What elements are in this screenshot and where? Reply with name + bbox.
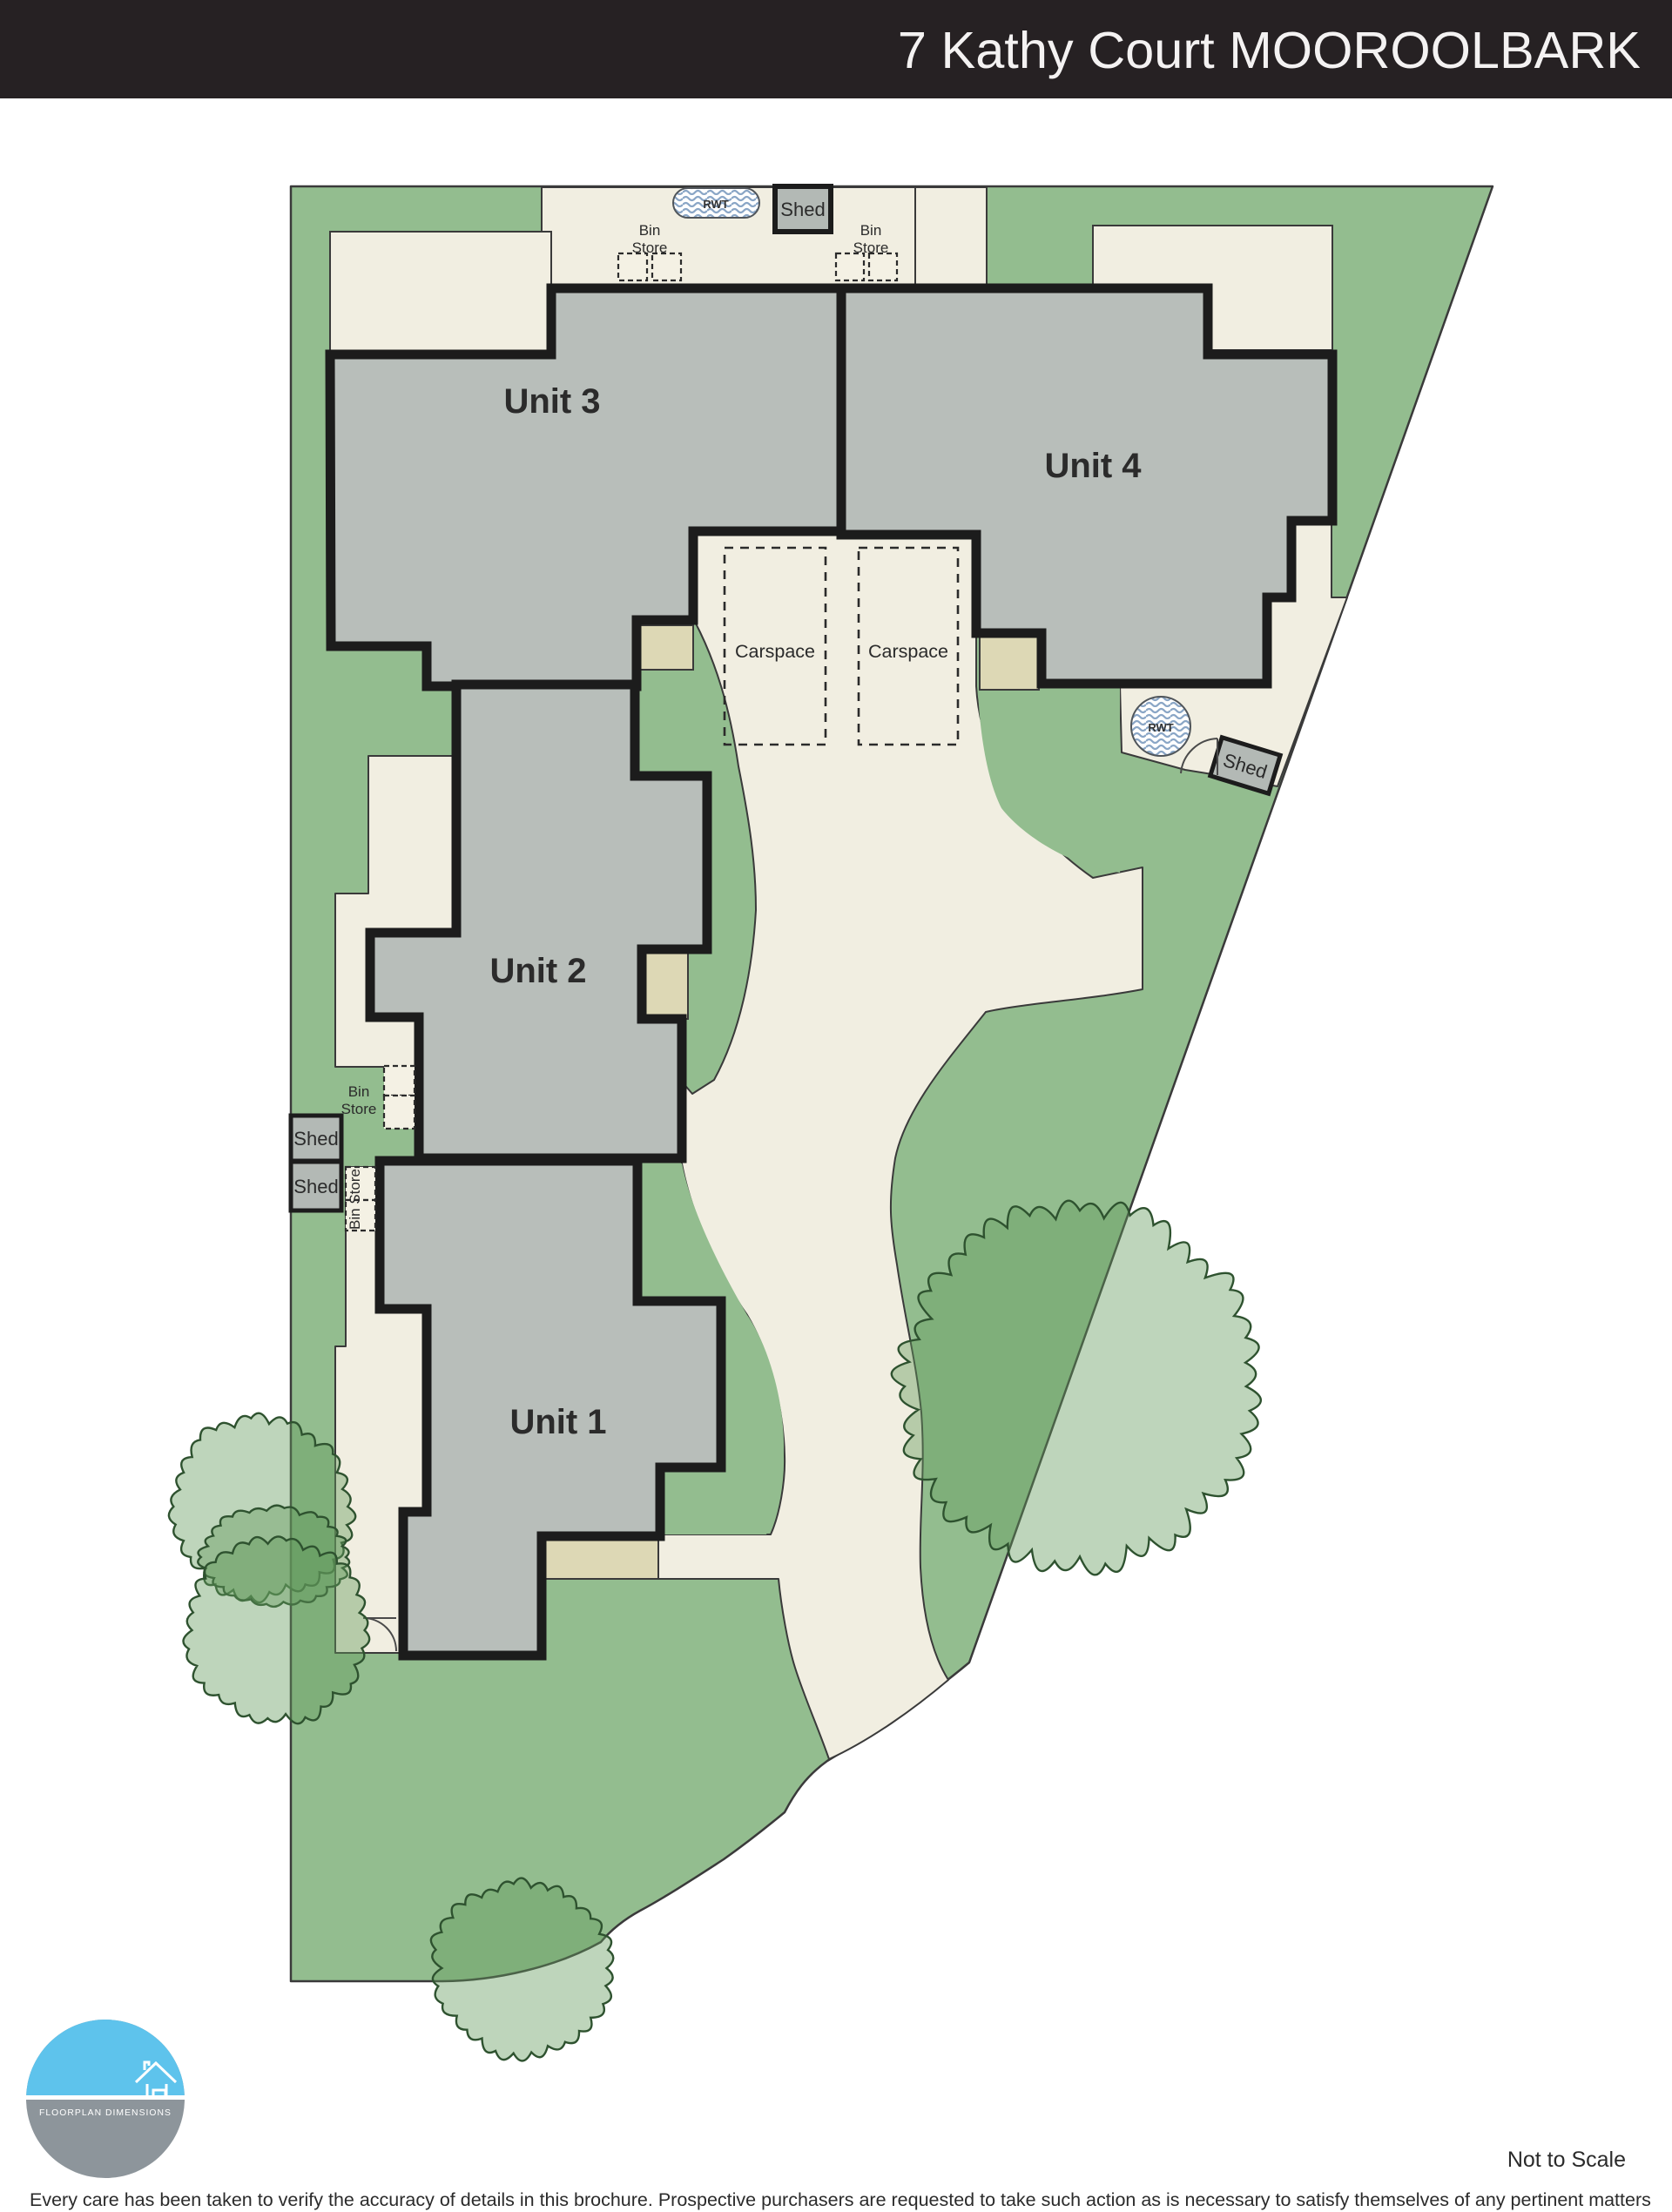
svg-text:FLOORPLAN DIMENSIONS: FLOORPLAN DIMENSIONS xyxy=(39,2108,172,2118)
svg-text:Bin: Bin xyxy=(348,1083,370,1100)
svg-text:Unit 4: Unit 4 xyxy=(1044,447,1142,485)
svg-text:Shed: Shed xyxy=(780,199,825,220)
svg-text:RWT: RWT xyxy=(703,198,728,211)
svg-text:Carspace: Carspace xyxy=(868,641,948,662)
svg-text:Store: Store xyxy=(341,1101,377,1117)
svg-text:Shed: Shed xyxy=(293,1176,338,1197)
svg-text:Bin: Bin xyxy=(860,222,882,239)
svg-text:Not to Scale: Not to Scale xyxy=(1507,2148,1626,2172)
svg-text:Bin: Bin xyxy=(639,222,661,239)
svg-text:Unit 1: Unit 1 xyxy=(509,1403,606,1441)
svg-text:Unit 2: Unit 2 xyxy=(489,952,586,990)
svg-text:Every care has been taken to v: Every care has been taken to verify the … xyxy=(30,2189,1651,2210)
svg-text:Carspace: Carspace xyxy=(735,641,815,662)
svg-text:7 Kathy Court MOOROOLBARK: 7 Kathy Court MOOROOLBARK xyxy=(898,21,1641,79)
svg-text:Shed: Shed xyxy=(293,1128,338,1150)
svg-text:RWT: RWT xyxy=(1148,721,1173,734)
svg-text:Unit 3: Unit 3 xyxy=(503,382,600,421)
svg-text:Bin Store: Bin Store xyxy=(347,1169,363,1230)
